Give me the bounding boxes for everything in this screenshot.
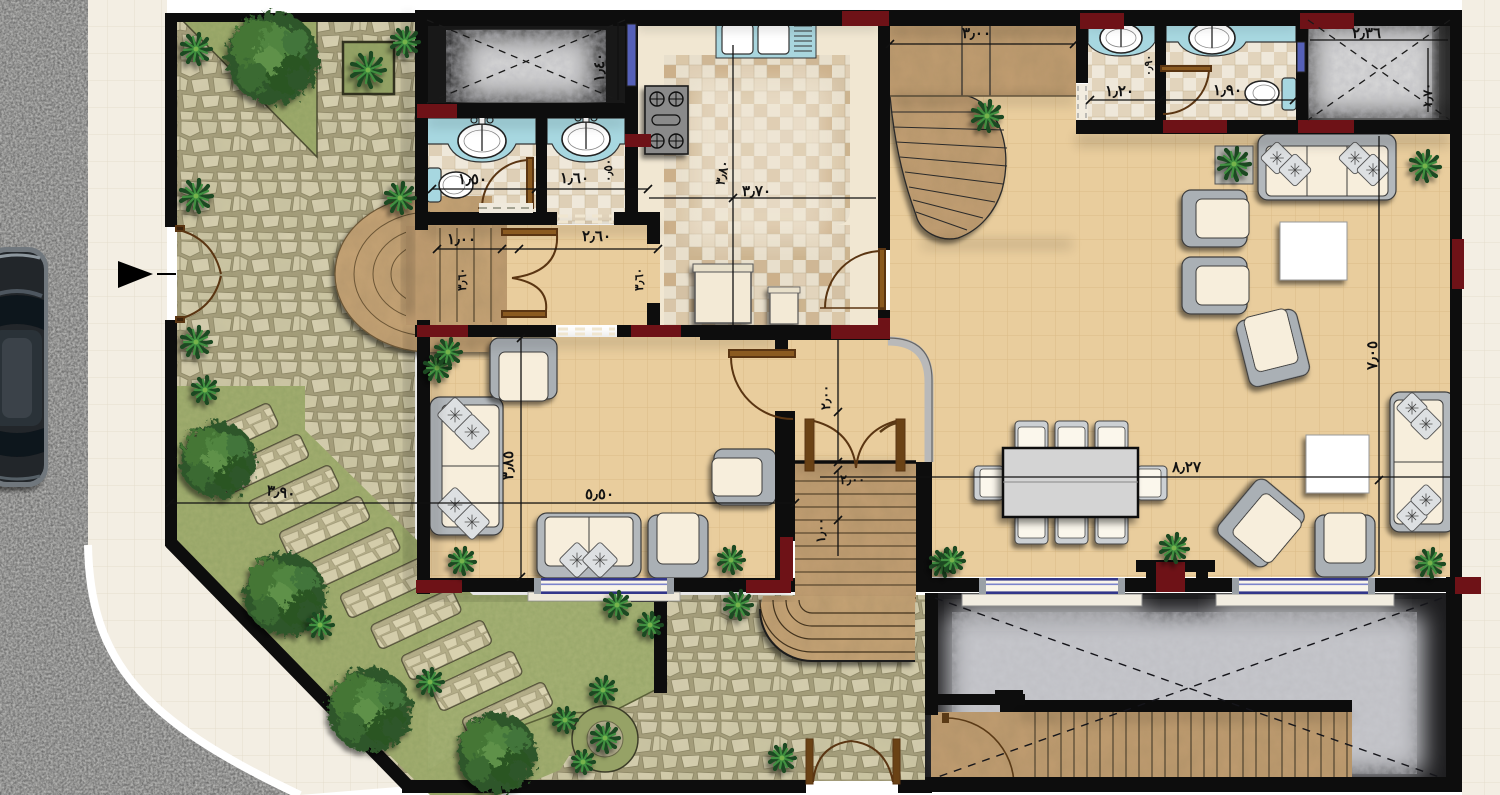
svg-text:٣٫٧٠: ٣٫٧٠ — [742, 183, 771, 200]
svg-text:١٫٠٠: ١٫٠٠ — [813, 518, 828, 543]
svg-text:٧٫٠٥: ٧٫٠٥ — [1364, 341, 1381, 371]
svg-text:٢٫٠٠: ٢٫٠٠ — [818, 385, 833, 410]
svg-text:٣٫٦٠: ٣٫٦٠ — [455, 268, 469, 291]
svg-text:١٫٢٠: ١٫٢٠ — [1105, 83, 1134, 100]
svg-text:١٫٤٠: ١٫٤٠ — [591, 53, 608, 82]
svg-text:٣٫٠٠: ٣٫٠٠ — [962, 25, 991, 42]
svg-text:٣٫٦٠: ٣٫٦٠ — [632, 268, 646, 291]
svg-text:٥٫٥٠: ٥٫٥٠ — [585, 486, 614, 503]
svg-text:٢٫٣٦: ٢٫٣٦ — [1352, 25, 1381, 42]
svg-text:١٫٦٠: ١٫٦٠ — [560, 170, 589, 187]
svg-text:٣٫٨٥: ٣٫٨٥ — [500, 451, 517, 480]
svg-text:١٫٥٠: ١٫٥٠ — [458, 171, 487, 188]
svg-text:٠٫٩٠: ٠٫٩٠ — [1143, 55, 1155, 76]
svg-text:١٫٠٠: ١٫٠٠ — [447, 231, 476, 248]
svg-text:٢٫٠٠: ٢٫٠٠ — [840, 472, 865, 487]
svg-text:٠٫٥٠: ٠٫٥٠ — [601, 159, 615, 182]
svg-text:٨٫٢٧: ٨٫٢٧ — [1171, 459, 1202, 476]
svg-text:٢٫٦٠: ٢٫٦٠ — [582, 228, 611, 245]
svg-text:١٫٧٠: ١٫٧٠ — [1420, 83, 1435, 108]
svg-text:١٫٩٠: ١٫٩٠ — [1213, 82, 1242, 99]
